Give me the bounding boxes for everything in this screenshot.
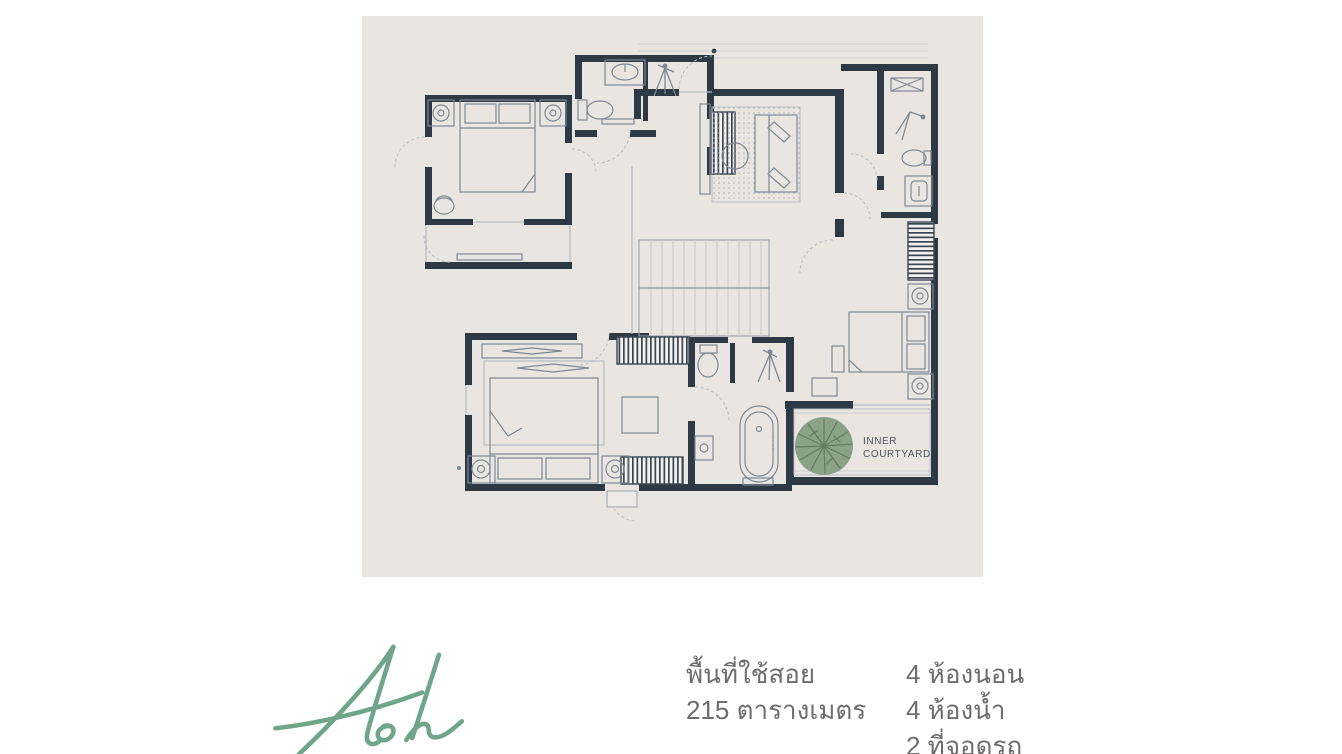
floor-plan: INNER COURTYARD: [362, 16, 983, 577]
bedroom-master: [457, 344, 629, 483]
inner-courtyard: INNER COURTYARD: [794, 409, 931, 475]
wardrobe-icon: [908, 222, 934, 280]
bathrooms-count: 4 ห้องน้ำ: [906, 692, 1024, 728]
bed-icon: [849, 312, 929, 372]
sink-icon: [605, 60, 645, 85]
ottoman-icon: [622, 397, 658, 433]
rug: [484, 361, 604, 445]
project-logo: Ash: [270, 633, 475, 754]
nightstand-icon: [540, 100, 566, 126]
area-label: พื้นที่ใช้สอย: [686, 656, 866, 692]
shower-icon: [896, 112, 925, 140]
bedrooms-count: 4 ห้องนอน: [906, 656, 1024, 692]
bathtub-icon: [740, 406, 778, 482]
specs-area-column: พื้นที่ใช้สอย 215 ตารางเมตร: [686, 656, 866, 728]
nightstand-icon: [908, 284, 933, 309]
bed-icon: [460, 100, 535, 192]
stairs: [639, 240, 769, 336]
balcony-bench-icon: [457, 254, 522, 260]
specs-rooms-column: 4 ห้องนอน 4 ห้องน้ำ 2 ที่จอดรถ: [906, 656, 1024, 754]
bedroom-right: [812, 312, 929, 396]
floor-plan-panel: INNER COURTYARD: [362, 16, 983, 577]
toilet-icon: [902, 150, 931, 166]
wardrobe-icon: [617, 337, 689, 364]
nightstand-icon: [908, 374, 933, 399]
exterior-walls: [425, 55, 938, 491]
toilet-icon: [578, 100, 613, 120]
shelf-icon: [891, 78, 923, 91]
parking-count: 2 ที่จอดรถ: [906, 728, 1024, 754]
canopy-icon: [517, 364, 589, 372]
stool-icon: [434, 198, 454, 214]
entry-door-step: [607, 491, 637, 507]
courtyard-tree-icon: [795, 417, 853, 475]
wardrobe-icon: [621, 457, 683, 484]
area-value: 215 ตารางเมตร: [686, 692, 866, 728]
shower-icon: [758, 350, 780, 382]
courtyard-label-line1: INNER: [863, 436, 897, 447]
bedroom-top-left: [428, 100, 566, 260]
bed-icon: [490, 378, 598, 483]
dresser-icon: [482, 344, 582, 358]
ash-signature: [270, 633, 475, 754]
washbasin-icon: [695, 436, 713, 460]
courtyard-label-line2: COURTYARD: [863, 449, 931, 460]
nightstand-icon: [468, 456, 495, 483]
toilet-icon: [698, 345, 718, 377]
living-area: [700, 104, 800, 202]
sink-icon: [905, 176, 932, 206]
page: INNER COURTYARD Ash พื้นที่ใช้สอย 215 ตา…: [0, 0, 1342, 754]
desk-icon: [812, 378, 837, 396]
bathroom-right: [891, 78, 932, 206]
bathroom-center: [695, 345, 780, 485]
